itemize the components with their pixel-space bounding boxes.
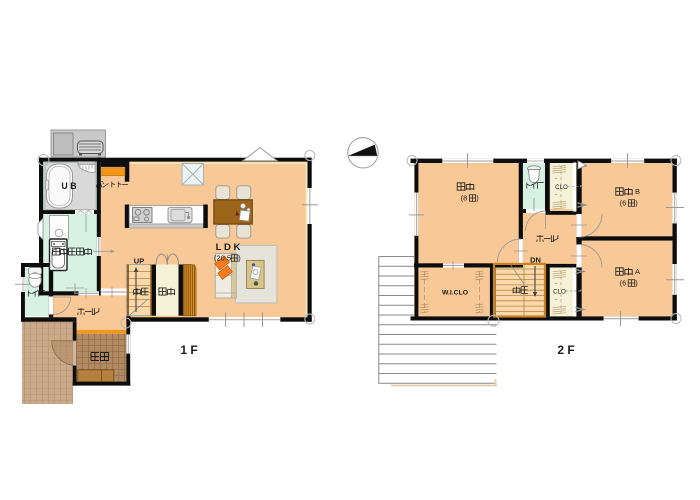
svg-text:A: A — [635, 267, 640, 276]
svg-text:L D K: L D K — [216, 242, 241, 253]
svg-text:(6: (6 — [620, 279, 627, 288]
svg-text:U B: U B — [61, 181, 76, 191]
svg-text:W.I.CLO: W.I.CLO — [442, 290, 468, 297]
svg-text:B: B — [635, 187, 640, 196]
svg-text:1 F: 1 F — [180, 343, 197, 357]
svg-text:CLO: CLO — [553, 289, 566, 296]
svg-text:2 F: 2 F — [557, 343, 574, 357]
svg-text:CLO: CLO — [555, 184, 568, 191]
svg-text:(8: (8 — [461, 194, 468, 203]
svg-text:(20.5: (20.5 — [214, 254, 231, 263]
svg-text:UP: UP — [134, 257, 144, 266]
svg-text:DN: DN — [530, 256, 541, 265]
svg-text:(6: (6 — [620, 199, 627, 208]
